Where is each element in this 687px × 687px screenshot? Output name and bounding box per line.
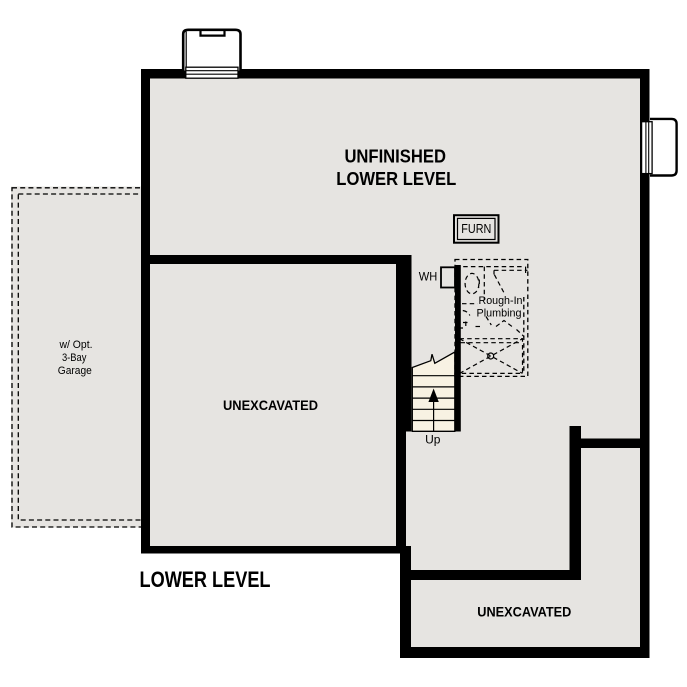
svg-text:Plumbing: Plumbing [477,307,522,319]
svg-text:Up: Up [425,432,441,446]
svg-text:FURN: FURN [461,221,491,236]
svg-text:WH: WH [419,270,438,284]
svg-text:w/ Opt.: w/ Opt. [59,339,93,351]
svg-text:Garage: Garage [58,365,92,377]
svg-text:UNEXCAVATED: UNEXCAVATED [223,398,318,414]
svg-text:Rough-In: Rough-In [479,295,523,307]
svg-text:LOWER LEVEL: LOWER LEVEL [140,567,271,592]
svg-text:LOWER LEVEL: LOWER LEVEL [336,168,456,189]
svg-text:UNEXCAVATED: UNEXCAVATED [477,605,571,621]
svg-text:3-Bay: 3-Bay [62,352,87,364]
svg-text:UNFINISHED: UNFINISHED [344,146,446,167]
